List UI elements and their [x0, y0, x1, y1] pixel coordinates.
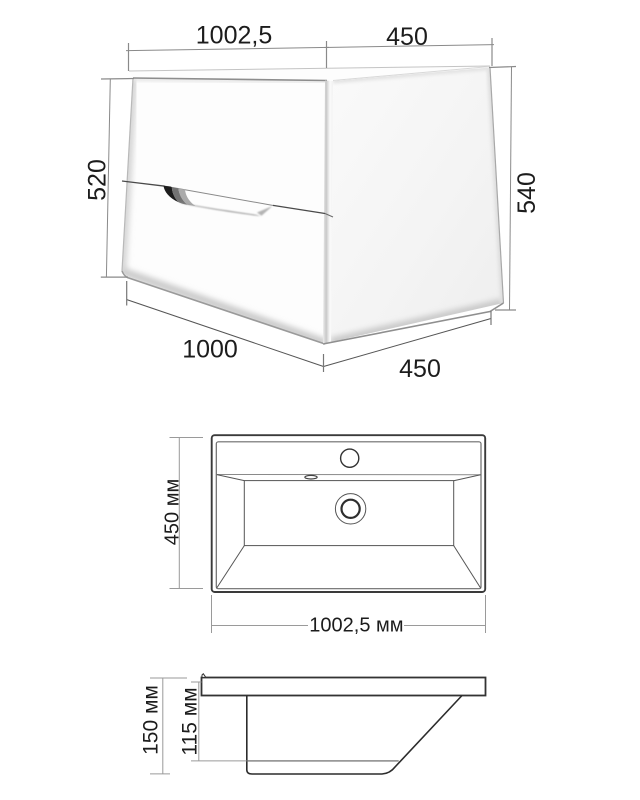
svg-text:150 мм: 150 мм — [140, 685, 163, 755]
svg-text:1002,5: 1002,5 — [196, 22, 272, 50]
svg-text:1000: 1000 — [182, 336, 238, 364]
svg-text:450 мм: 450 мм — [162, 479, 184, 545]
svg-text:540: 540 — [513, 172, 541, 214]
svg-text:520: 520 — [84, 159, 112, 201]
svg-text:450: 450 — [386, 23, 428, 51]
svg-text:450: 450 — [399, 355, 441, 383]
svg-text:115 мм: 115 мм — [179, 687, 202, 755]
svg-text:1002,5 мм: 1002,5 мм — [309, 615, 403, 637]
